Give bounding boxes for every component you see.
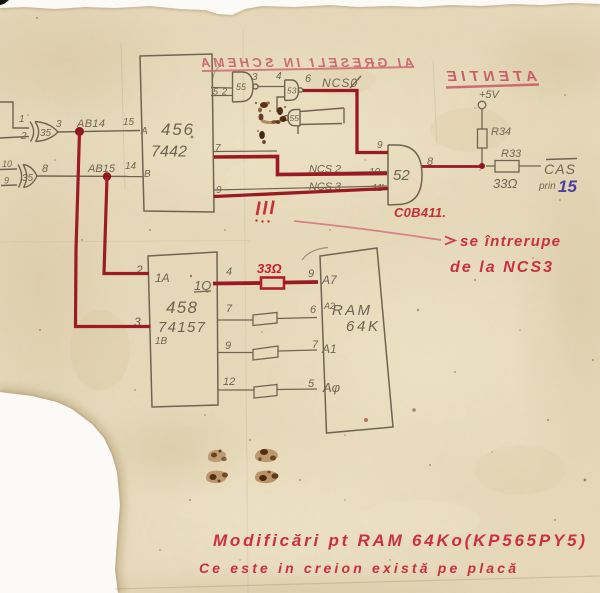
svg-text:35: 35: [40, 128, 52, 139]
svg-text:456: 456: [161, 120, 194, 139]
svg-text:6: 6: [305, 73, 312, 85]
svg-text:CAS: CAS: [544, 161, 576, 177]
svg-text:7: 7: [215, 143, 221, 154]
svg-text:R33: R33: [501, 148, 522, 160]
svg-text:33Ω: 33Ω: [257, 261, 282, 276]
svg-text:1A: 1A: [155, 271, 170, 285]
svg-text:A1: A1: [321, 342, 337, 356]
svg-text:55: 55: [236, 82, 247, 92]
svg-text:B: B: [144, 169, 151, 180]
svg-text:7: 7: [312, 339, 319, 351]
svg-text:4: 4: [226, 266, 232, 278]
svg-text:55: 55: [290, 113, 300, 123]
svg-text:NCS0: NCS0: [322, 76, 357, 90]
svg-text:458: 458: [166, 298, 198, 317]
svg-text:1: 1: [19, 114, 25, 125]
svg-text:A7: A7: [321, 273, 338, 287]
svg-text:64K: 64K: [346, 318, 379, 335]
svg-text:7442: 7442: [151, 144, 187, 161]
svg-text:3: 3: [56, 119, 62, 130]
svg-text:Modificări pt RAM 64Ko(KP565PY: Modificări pt RAM 64Ko(KP565PY5): [213, 531, 585, 550]
svg-text:+5V: +5V: [479, 89, 501, 101]
svg-text:6: 6: [310, 304, 317, 316]
svg-text:53: 53: [287, 86, 297, 96]
svg-text:RAM: RAM: [332, 302, 371, 319]
svg-text:52: 52: [393, 167, 410, 184]
svg-text:15: 15: [123, 117, 135, 128]
svg-text:A: A: [140, 126, 148, 137]
svg-text:9: 9: [225, 340, 231, 352]
svg-text:14: 14: [125, 161, 137, 172]
svg-text:15: 15: [558, 177, 577, 196]
svg-text:4: 4: [276, 71, 282, 82]
svg-text:prin: prin: [538, 181, 556, 192]
svg-text:33Ω: 33Ω: [493, 176, 517, 191]
svg-text:2: 2: [221, 87, 227, 97]
svg-text:3: 3: [252, 72, 258, 83]
svg-text:9: 9: [308, 268, 314, 280]
svg-text:35: 35: [22, 173, 34, 184]
svg-text:9: 9: [4, 176, 9, 186]
svg-text:Ce este in creion există pe pl: Ce este in creion există pe placă: [199, 560, 516, 576]
svg-text:de la NCS3: de la NCS3: [450, 259, 552, 276]
svg-text:Aφ: Aφ: [322, 380, 341, 395]
svg-text:5: 5: [308, 378, 315, 390]
svg-text:2: 2: [20, 131, 27, 142]
svg-text:R34: R34: [491, 126, 511, 138]
svg-text:AB15: AB15: [87, 163, 116, 175]
svg-text:1B: 1B: [155, 336, 168, 347]
svg-text:7: 7: [226, 303, 233, 315]
svg-text:8: 8: [42, 163, 49, 175]
svg-text:74157: 74157: [158, 319, 206, 336]
svg-text:12: 12: [223, 376, 235, 388]
svg-text:se întrerupe: se întrerupe: [460, 233, 560, 250]
svg-text:9: 9: [377, 140, 383, 151]
svg-text:10: 10: [2, 159, 12, 169]
svg-text:C0B411.: C0B411.: [394, 205, 446, 220]
